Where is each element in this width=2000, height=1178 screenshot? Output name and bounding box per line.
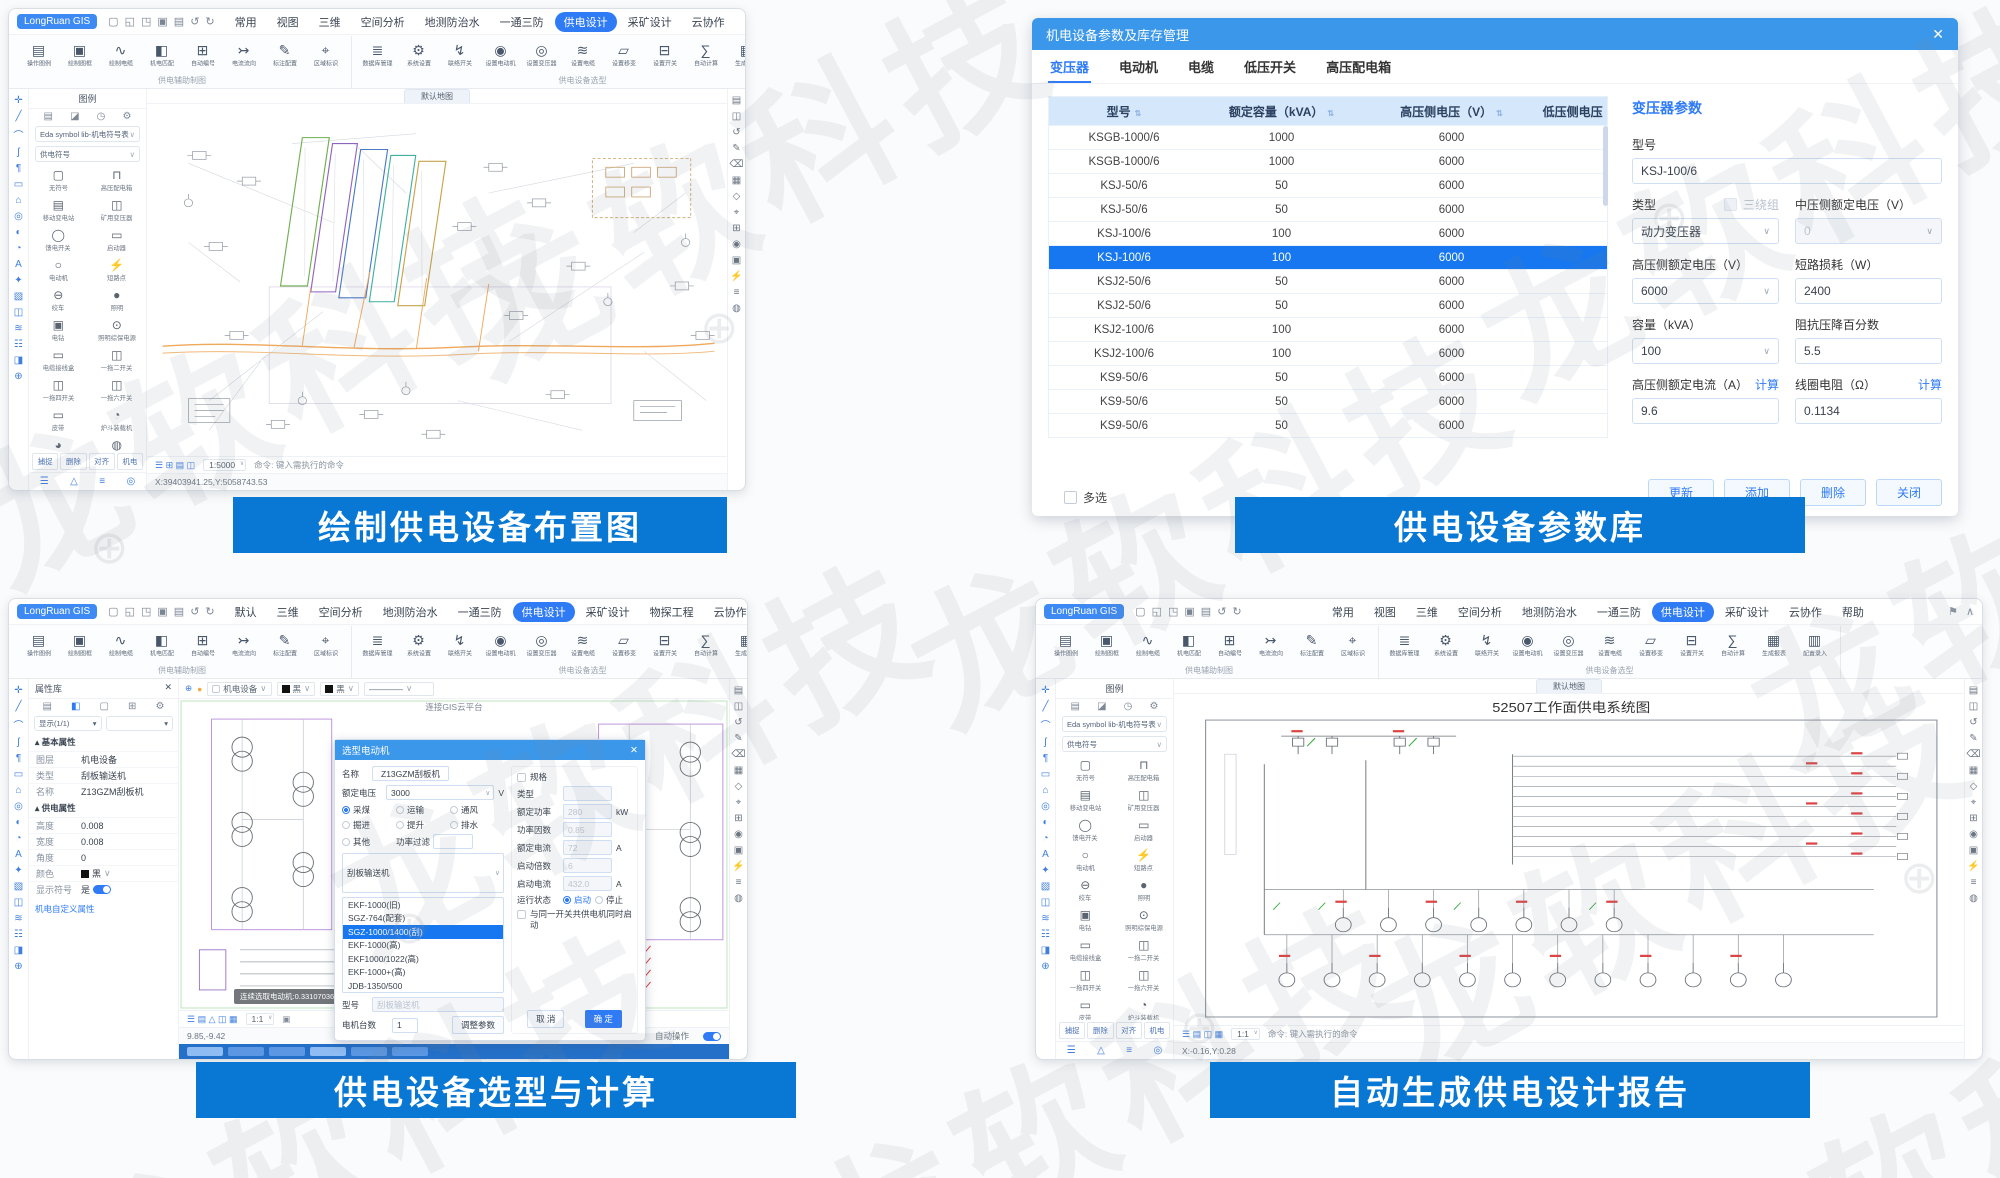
tool-icon[interactable]: ☷ — [14, 929, 23, 940]
menu-常用[interactable]: 常用 — [226, 12, 266, 32]
save-icon[interactable]: ◳ — [1168, 605, 1178, 618]
ribbon-btn-flow-icon[interactable]: ↣ 电流流向 — [1250, 626, 1291, 665]
open-file-icon[interactable]: ◱ — [125, 605, 135, 618]
tab-变压器[interactable]: 变压器 — [1048, 51, 1091, 82]
pin-icon[interactable]: ⊕ — [185, 683, 192, 694]
legend-btn-删除[interactable]: 删除 — [60, 453, 86, 470]
table-row[interactable]: KS9-50/650 6000 — [1049, 389, 1608, 413]
tool-icon[interactable]: ⌂ — [15, 195, 21, 206]
taskbar-chip[interactable] — [351, 1047, 387, 1056]
tool-icon[interactable]: ▧ — [14, 291, 23, 302]
tool-icon[interactable]: ʃ — [1044, 737, 1046, 748]
menu-默认[interactable]: 默认 — [226, 602, 266, 622]
layers-icon[interactable]: ≡ — [1126, 1045, 1132, 1056]
tree-icon[interactable]: △ — [1097, 1045, 1105, 1056]
col-header[interactable]: 高压侧电压（V）⇅ — [1364, 103, 1539, 120]
tool-icon[interactable]: ◍ — [1969, 893, 1978, 904]
symbol-sym-starter[interactable]: ▭ 启动器 — [1115, 816, 1174, 846]
table-row[interactable]: KSJ-50/650 6000 — [1049, 173, 1608, 197]
symbol-sym-switch-2[interactable]: ◫ 一拖二开关 — [88, 346, 147, 376]
ribbon-btn-cable-icon[interactable]: ∿ 绘制电缆 — [100, 36, 141, 75]
ribbon-btn-link-switch-icon[interactable]: ↯ 联络开关 — [439, 626, 480, 665]
menu-采矿设计[interactable]: 采矿设计 — [619, 12, 681, 32]
show-symbol-toggle[interactable] — [93, 885, 111, 894]
symbol-sym-starter[interactable]: ▭ 启动器 — [88, 226, 147, 256]
menu-一通三防[interactable]: 一通三防 — [1588, 602, 1650, 622]
coil-res-calc-link[interactable]: 计算 — [1918, 376, 1942, 393]
tree-icon[interactable]: △ — [70, 476, 78, 487]
symbol-sym-scraper-loader[interactable]: ◕ 耙斗装载机 — [29, 436, 88, 451]
adjust-params-button[interactable]: 调整参数 — [452, 1016, 504, 1034]
tool-icon[interactable]: ◔ — [15, 833, 21, 844]
model-input[interactable]: KSJ-100/6 — [1632, 158, 1942, 184]
symbol-sym-mobile-substation[interactable]: ▤ 移动变电站 — [29, 196, 88, 226]
tool-icon[interactable]: ◉ — [734, 829, 743, 840]
model-option[interactable]: EKF1000/1022(高) — [343, 952, 503, 966]
flag-icon[interactable]: ⚑ — [1948, 605, 1958, 618]
ribbon-btn-legend-icon[interactable]: ▤ 操作图例 — [18, 36, 59, 75]
model-option[interactable]: EKF-1000+(高) — [343, 966, 503, 980]
tool-icon[interactable]: ⌫ — [729, 159, 743, 170]
tool-icon[interactable]: ¶ — [16, 753, 21, 764]
tab-default-map[interactable]: 默认地图 — [404, 89, 470, 103]
tool-icon[interactable]: ⊞ — [732, 223, 740, 234]
undo-icon[interactable]: ↺ — [1217, 605, 1226, 618]
tool-icon[interactable]: ✦ — [14, 275, 22, 286]
usage-radio-运输[interactable]: 运输 — [396, 804, 450, 816]
tool-icon[interactable]: ◫ — [14, 307, 23, 318]
linetype-select[interactable]: ————∨ — [364, 682, 434, 696]
menu-供电设计[interactable]: 供电设计 — [513, 602, 575, 622]
snap-icons[interactable]: ☰ ▤ ◫ ▦ — [1182, 1029, 1223, 1040]
legend-btn-删除[interactable]: 删除 — [1087, 1022, 1113, 1039]
ribbon-btn-flow-icon[interactable]: ↣ 电流流向 — [223, 626, 264, 665]
tool-icon[interactable]: ▧ — [14, 881, 23, 892]
snap-icons[interactable]: ☰ ▤ △ ◫ ▦ — [187, 1014, 238, 1025]
menu-地测防治水[interactable]: 地测防治水 — [374, 602, 447, 622]
symbol-sym-winch[interactable]: ⊖ 绞车 — [1056, 876, 1115, 906]
symbol-lib-select[interactable]: Eda symbol lib-机电符号表∨ — [1062, 716, 1167, 732]
tab-default-map[interactable]: 默认地图 — [1536, 679, 1602, 693]
menu-空间分析[interactable]: 空间分析 — [352, 12, 414, 32]
gear-icon[interactable]: ⚙ — [122, 111, 131, 122]
tool-icon[interactable]: ╱ — [1042, 701, 1048, 712]
ribbon-btn-cable-set-icon[interactable]: ≋ 设置电缆 — [562, 626, 603, 665]
ribbon-btn-switch-set-icon[interactable]: ⊟ 设置开关 — [644, 626, 685, 665]
print-icon[interactable]: ▤ — [1201, 605, 1211, 618]
tool-icon[interactable]: ⊞ — [1969, 813, 1977, 824]
drawing-canvas[interactable]: 52507工作面供电系统图 — [1174, 694, 1964, 1025]
legend-btn-机电[interactable]: 机电 — [1144, 1022, 1170, 1039]
tool-icon[interactable]: ◨ — [1041, 945, 1050, 956]
menu-空间分析[interactable]: 空间分析 — [1449, 602, 1511, 622]
symbol-sym-mobile-substation[interactable]: ▤ 移动变电站 — [1056, 786, 1115, 816]
tool-icon[interactable]: ◍ — [734, 893, 743, 904]
tool-icon[interactable]: ʃ — [17, 737, 19, 748]
ribbon-btn-switch-set-icon[interactable]: ⊟ 设置开关 — [1671, 626, 1712, 665]
ribbon-btn-auto-calc-icon[interactable]: ∑ 自动计算 — [685, 36, 726, 75]
cancel-button[interactable]: 取 消 — [527, 1010, 564, 1028]
symbol-sym-switch-4[interactable]: ◫ 一拖四开关 — [29, 376, 88, 406]
save-all-icon[interactable]: ▣ — [157, 15, 167, 28]
redo-icon[interactable]: ↻ — [205, 15, 214, 28]
state-radio-停止[interactable]: 停止 — [595, 894, 623, 906]
category-select[interactable]: 刮板输送机 — [342, 853, 504, 893]
menu-采矿设计[interactable]: 采矿设计 — [577, 602, 639, 622]
tool-icon[interactable]: ◐ — [15, 817, 21, 828]
symbol-sym-hv-box[interactable]: ⊓ 高压配电箱 — [1115, 756, 1174, 786]
symbol-sym-cable-box[interactable]: ▭ 电缆接线盒 — [1056, 936, 1115, 966]
list-icon[interactable]: ☰ — [40, 476, 49, 487]
save-all-icon[interactable]: ▣ — [1184, 605, 1194, 618]
tool-icon[interactable]: ▭ — [14, 179, 23, 190]
state-radio-启动[interactable]: 启动 — [563, 894, 591, 906]
tool-icon[interactable]: ◐ — [15, 227, 21, 238]
new-file-icon[interactable]: ▢ — [108, 15, 118, 28]
tool-icon[interactable]: ¶ — [1043, 753, 1048, 764]
ribbon-btn-mobile-sub-icon[interactable]: ▱ 设置移变 — [603, 36, 644, 75]
menu-三维[interactable]: 三维 — [268, 602, 308, 622]
ribbon-btn-auto-calc-icon[interactable]: ∑ 自动计算 — [685, 626, 726, 665]
three-winding-checkbox[interactable] — [1724, 198, 1737, 211]
symbol-sym-belt[interactable]: ▭ 皮带 — [1056, 996, 1115, 1020]
ribbon-btn-database-icon[interactable]: ≣ 数据库管理 — [357, 36, 398, 75]
table-row[interactable]: KSJ-50/650 6000 — [1049, 197, 1608, 221]
hv-current-input[interactable]: 9.6 — [1632, 398, 1779, 424]
tool-icon[interactable]: ≋ — [14, 323, 22, 334]
ribbon-btn-settings-icon[interactable]: ⚙ 系统设置 — [398, 626, 439, 665]
tool-icon[interactable]: ⌂ — [15, 785, 21, 796]
ribbon-btn-motor-set-icon[interactable]: ◉ 设置电动机 — [480, 626, 521, 665]
taskbar-chip[interactable] — [392, 1047, 428, 1056]
dialog-btn-关闭[interactable]: 关闭 — [1876, 479, 1942, 506]
ribbon-btn-database-icon[interactable]: ≣ 数据库管理 — [1384, 626, 1425, 665]
legend-btn-对齐[interactable]: 对齐 — [89, 453, 115, 470]
tool-icon[interactable]: ⌒ — [1041, 717, 1051, 732]
menu-一通三防[interactable]: 一通三防 — [449, 602, 511, 622]
model-option[interactable]: JDB-1350/500 — [343, 979, 503, 993]
tool-icon[interactable]: ▭ — [1041, 769, 1050, 780]
tool-icon[interactable]: ≡ — [1971, 877, 1977, 888]
legend-btn-捕捉[interactable]: 捕捉 — [1059, 1022, 1085, 1039]
clock-icon[interactable]: ◷ — [97, 111, 106, 122]
ribbon-btn-number-icon[interactable]: ⊞ 自动编号 — [182, 626, 223, 665]
usage-radio-掘进[interactable]: 掘进 — [342, 819, 396, 831]
menu-三维[interactable]: 三维 — [310, 12, 350, 32]
table-row[interactable]: KSJ2-50/650 6000 — [1049, 269, 1608, 293]
tool-icon[interactable]: ⌖ — [736, 797, 742, 808]
symbol-sym-winch[interactable]: ⊖ 绞车 — [29, 286, 88, 316]
auto-operate-toggle[interactable] — [703, 1032, 721, 1041]
legend-btn-对齐[interactable]: 对齐 — [1116, 1022, 1142, 1039]
menu-帮助[interactable]: 帮助 — [1833, 602, 1873, 622]
tool-icon[interactable]: ≡ — [734, 287, 740, 298]
usage-radio-通风[interactable]: 通风 — [450, 804, 504, 816]
tool-icon[interactable]: ↺ — [734, 717, 742, 728]
tool-icon[interactable]: ◔ — [15, 243, 21, 254]
symbol-sym-mine-transformer[interactable]: ◫ 矿用变压器 — [1115, 786, 1174, 816]
ribbon-btn-transformer-set-icon[interactable]: ◎ 设置变压器 — [1548, 626, 1589, 665]
plus-icon[interactable]: ⊞ — [128, 701, 136, 712]
tool-icon[interactable]: ʃ — [17, 147, 19, 158]
menu-一通三防[interactable]: 一通三防 — [491, 12, 553, 32]
undo-icon[interactable]: ↺ — [190, 605, 199, 618]
usage-radio-排水[interactable]: 排水 — [450, 819, 504, 831]
ribbon-btn-auto-calc-icon[interactable]: ∑ 自动计算 — [1712, 626, 1753, 665]
ribbon-btn-settings-icon[interactable]: ⚙ 系统设置 — [1425, 626, 1466, 665]
tool-icon[interactable]: A — [1042, 849, 1049, 860]
tool-icon[interactable]: ▣ — [1969, 845, 1978, 856]
tool-icon[interactable]: ↺ — [732, 127, 740, 138]
tool-icon[interactable]: ✎ — [734, 733, 742, 744]
tool-icon[interactable]: ▤ — [732, 95, 741, 106]
tool-icon[interactable]: ⚡ — [730, 271, 742, 282]
tool-icon[interactable]: ◇ — [733, 191, 741, 202]
menu-采矿设计[interactable]: 采矿设计 — [1716, 602, 1778, 622]
col-header[interactable]: 额定容量（kVA）⇅ — [1199, 103, 1364, 120]
symbol-sym-lighting-protector[interactable]: ⊙ 照明综保电源 — [88, 316, 147, 346]
tab-高压配电箱[interactable]: 高压配电箱 — [1324, 51, 1393, 82]
symbol-sym-cable-box[interactable]: ▭ 电缆接线盒 — [29, 346, 88, 376]
symbol-sym-lighting[interactable]: ● 照明 — [1115, 876, 1174, 906]
sort-icon[interactable]: ⇅ — [1327, 109, 1334, 118]
filter-select[interactable]: 显示(1/1)▾ — [34, 716, 102, 731]
print-icon[interactable]: ▤ — [174, 15, 184, 28]
open-file-icon[interactable]: ◱ — [1152, 605, 1162, 618]
legend-btn-机电[interactable]: 机电 — [117, 453, 143, 470]
color-select-1[interactable]: 黑∨ — [277, 682, 316, 696]
tool-icon[interactable]: ✛ — [14, 95, 22, 106]
table-scrollbar[interactable] — [1603, 126, 1608, 206]
model-option[interactable]: SGZ-1000/1400(刮) — [343, 925, 503, 939]
symbol-sym-drill[interactable]: ▣ 电钻 — [29, 316, 88, 346]
tool-icon[interactable]: ✦ — [14, 865, 22, 876]
tool-icon[interactable]: ◫ — [732, 111, 741, 122]
new-file-icon[interactable]: ▢ — [108, 605, 118, 618]
dialog-btn-删除[interactable]: 删除 — [1800, 479, 1866, 506]
ribbon-btn-link-switch-icon[interactable]: ↯ 联络开关 — [1466, 626, 1507, 665]
tool-icon[interactable]: ▣ — [734, 845, 743, 856]
symbol-sym-hv-box[interactable]: ⊓ 高压配电箱 — [88, 166, 147, 196]
target-icon[interactable]: ◎ — [1154, 1045, 1163, 1056]
tool-icon[interactable]: ◎ — [1041, 801, 1050, 812]
ribbon-btn-database-icon[interactable]: ≣ 数据库管理 — [357, 626, 398, 665]
gear-icon[interactable]: ⚙ — [1149, 701, 1158, 712]
image-icon[interactable]: ◪ — [1097, 701, 1106, 712]
tool-icon[interactable]: ✛ — [14, 685, 22, 696]
sort-icon[interactable]: ⇅ — [1496, 109, 1503, 118]
table-row[interactable]: KSJ-100/6100 6000 — [1049, 221, 1608, 245]
close-icon[interactable]: ✕ — [164, 682, 172, 695]
menu-帮助[interactable]: 帮助 — [736, 12, 746, 32]
menu-云协作[interactable]: 云协作 — [705, 602, 748, 622]
ribbon-btn-report-icon[interactable]: ▦ 生成报表 — [726, 626, 748, 665]
coil-res-input[interactable]: 0.1134 — [1795, 398, 1942, 424]
tool-icon[interactable]: ▧ — [1041, 881, 1050, 892]
tool-icon[interactable]: ╱ — [15, 701, 21, 712]
ribbon-btn-annotate-icon[interactable]: ✎ 标注配置 — [264, 626, 305, 665]
tab-电动机[interactable]: 电动机 — [1117, 51, 1160, 82]
table-row[interactable]: KS9-50/650 6000 — [1049, 413, 1608, 437]
gear-icon[interactable]: ⚙ — [155, 701, 164, 712]
ribbon-btn-report-icon[interactable]: ▦ 生成报表 — [1753, 626, 1794, 665]
tool-icon[interactable]: ◫ — [14, 897, 23, 908]
symbol-sym-loader[interactable]: ◔ 炉斗装载机 — [1115, 996, 1174, 1020]
tool-icon[interactable]: ▣ — [732, 255, 741, 266]
usage-radio-采煤[interactable]: 采煤 — [342, 804, 396, 816]
symbol-sym-motor[interactable]: ○ 电动机 — [1056, 846, 1115, 876]
tool-icon[interactable]: ◉ — [1969, 829, 1978, 840]
tool-icon[interactable]: ⌒ — [14, 127, 24, 142]
symbol-sym-belt[interactable]: ▭ 皮带 — [29, 406, 88, 436]
grid-icon[interactable]: ▤ — [44, 111, 53, 122]
table-row[interactable]: KS9-50/650 6000 — [1049, 365, 1608, 389]
table-row[interactable]: KSGB-1000/61000 6000 — [1049, 149, 1608, 173]
list-icon[interactable]: ◧ — [71, 701, 80, 712]
ribbon-btn-frame-icon[interactable]: ▣ 绘制图框 — [1086, 626, 1127, 665]
page-icon[interactable]: ▣ — [282, 1014, 290, 1025]
tool-icon[interactable]: ◐ — [1042, 817, 1048, 828]
tool-icon[interactable]: ◇ — [735, 781, 743, 792]
ribbon-btn-switch-set-icon[interactable]: ⊟ 设置开关 — [644, 36, 685, 75]
tool-icon[interactable]: ⊞ — [734, 813, 742, 824]
table-row[interactable]: KSJ2-100/6100 6000 — [1049, 341, 1608, 365]
ribbon-btn-match-icon[interactable]: ◧ 机电匹配 — [141, 626, 182, 665]
usage-radio-提升[interactable]: 提升 — [396, 819, 450, 831]
tool-icon[interactable]: ⊕ — [14, 961, 22, 972]
ribbon-btn-cable-icon[interactable]: ∿ 绘制电缆 — [1127, 626, 1168, 665]
ribbon-btn-frame-icon[interactable]: ▣ 绘制图框 — [59, 626, 100, 665]
tool-icon[interactable]: ⌒ — [14, 717, 24, 732]
ribbon-btn-mobile-sub-icon[interactable]: ▱ 设置移变 — [603, 626, 644, 665]
menu-云协作[interactable]: 云协作 — [683, 12, 734, 32]
legend-btn-捕捉[interactable]: 捕捉 — [32, 453, 58, 470]
tab-电缆[interactable]: 电缆 — [1186, 51, 1216, 82]
open-file-icon[interactable]: ◱ — [125, 15, 135, 28]
print-icon[interactable]: ▤ — [174, 605, 184, 618]
zoom-select[interactable]: 1:1 — [1231, 1028, 1260, 1040]
symbol-sym-switch-4[interactable]: ◫ 一拖四开关 — [1056, 966, 1115, 996]
ribbon-btn-region-icon[interactable]: ⌖ 区域标识 — [305, 36, 346, 75]
ribbon-btn-motor-set-icon[interactable]: ◉ 设置电动机 — [480, 36, 521, 75]
new-file-icon[interactable]: ▢ — [1135, 605, 1145, 618]
tool-icon[interactable]: ↺ — [1969, 717, 1977, 728]
symbol-sym-mine-transformer[interactable]: ◫ 矿用变压器 — [88, 196, 147, 226]
symbol-sym-fixed-fan[interactable]: ◍ 固定式局扇 — [88, 436, 147, 451]
save-icon[interactable]: ◳ — [141, 605, 151, 618]
tool-icon[interactable]: ≋ — [1041, 913, 1049, 924]
list-icon[interactable]: ☰ — [1067, 1045, 1076, 1056]
ribbon-btn-number-icon[interactable]: ⊞ 自动编号 — [182, 36, 223, 75]
tool-icon[interactable]: A — [15, 849, 22, 860]
symbol-sym-drill[interactable]: ▣ 电钻 — [1056, 906, 1115, 936]
custom-props-link[interactable]: 机电自定义属性 — [29, 897, 178, 921]
motor-count-input[interactable]: 1 — [392, 1018, 418, 1033]
save-icon[interactable]: ◳ — [141, 15, 151, 28]
ribbon-btn-transformer-set-icon[interactable]: ◎ 设置变压器 — [521, 36, 562, 75]
menu-供电设计[interactable]: 供电设计 — [1652, 602, 1714, 622]
tool-icon[interactable]: ◨ — [14, 355, 23, 366]
tool-icon[interactable]: ◉ — [732, 239, 741, 250]
ribbon-btn-match-icon[interactable]: ◧ 机电匹配 — [141, 36, 182, 75]
type-select[interactable]: 动力变压器 — [1632, 218, 1779, 244]
ribbon-btn-settings-icon[interactable]: ⚙ 系统设置 — [398, 36, 439, 75]
spec-check[interactable]: 规格 — [517, 771, 632, 783]
menu-物探工程[interactable]: 物探工程 — [641, 602, 703, 622]
tool-icon[interactable]: ⚡ — [1967, 861, 1979, 872]
snap-icons[interactable]: ☰ ⊞ ▤ ◫ — [155, 460, 195, 471]
sync-check[interactable]: 与同一开关共供电机同时启动 — [517, 909, 632, 930]
menu-常用[interactable]: 常用 — [1323, 602, 1363, 622]
ribbon-btn-frame-icon[interactable]: ▣ 绘制图框 — [59, 36, 100, 75]
ribbon-btn-motor-set-icon[interactable]: ◉ 设置电动机 — [1507, 626, 1548, 665]
ribbon-btn-transformer-set-icon[interactable]: ◎ 设置变压器 — [521, 626, 562, 665]
chart-icon[interactable]: ▤ — [43, 701, 52, 712]
symbol-sym-lighting-protector[interactable]: ⊙ 照明综保电源 — [1115, 906, 1174, 936]
tool-icon[interactable]: ◎ — [14, 801, 23, 812]
target-icon[interactable]: ◎ — [127, 476, 136, 487]
tool-icon[interactable]: ≡ — [736, 877, 742, 888]
symbol-sym-none[interactable]: ▢ 无符号 — [1056, 756, 1115, 786]
symbol-sym-switch-6[interactable]: ◫ 一拖六开关 — [88, 376, 147, 406]
col-header[interactable]: 型号⇅ — [1049, 103, 1199, 120]
tool-icon[interactable]: ✦ — [1041, 865, 1049, 876]
model-list[interactable]: EKF-1000(旧)SGZ-764(配套)SGZ-1000/1400(刮)EK… — [342, 897, 504, 993]
tool-icon[interactable]: ≋ — [14, 913, 22, 924]
symbol-sym-switch-6[interactable]: ◫ 一拖六开关 — [1115, 966, 1174, 996]
tool-icon[interactable]: ◍ — [732, 303, 741, 314]
layer-select[interactable]: 机电设备∨ — [207, 682, 271, 696]
ribbon-btn-legend-icon[interactable]: ▤ 操作图例 — [18, 626, 59, 665]
table-row[interactable]: KSJ2-100/6100 6000 — [1049, 317, 1608, 341]
ribbon-btn-link-switch-icon[interactable]: ↯ 联络开关 — [439, 36, 480, 75]
model-option[interactable]: EKF-1000(旧) — [343, 898, 503, 912]
col-header[interactable]: 低压侧电压（V）⇅ — [1539, 103, 1608, 120]
ribbon-btn-cable-icon[interactable]: ∿ 绘制电缆 — [100, 626, 141, 665]
tool-icon[interactable]: ⌂ — [1042, 785, 1048, 796]
grid-icon[interactable]: ▤ — [1071, 701, 1080, 712]
table-row[interactable]: KSGB-1000/61000 6000 — [1049, 125, 1608, 149]
tool-icon[interactable]: ◫ — [734, 701, 743, 712]
layers-icon[interactable]: ≡ — [99, 476, 105, 487]
ok-button[interactable]: 确 定 — [585, 1010, 622, 1028]
taskbar-chip[interactable] — [310, 1047, 346, 1056]
ribbon-btn-annotate-icon[interactable]: ✎ 标注配置 — [264, 36, 305, 75]
symbol-sym-loader[interactable]: ◔ 炉斗装载机 — [88, 406, 147, 436]
tool-icon[interactable]: ▦ — [734, 765, 743, 776]
bulb-icon[interactable]: ● — [197, 684, 202, 694]
menu-地测防治水[interactable]: 地测防治水 — [416, 12, 489, 32]
tool-icon[interactable]: ⚡ — [732, 861, 744, 872]
tool-icon[interactable]: ◫ — [1969, 701, 1978, 712]
menu-地测防治水[interactable]: 地测防治水 — [1513, 602, 1586, 622]
ribbon-btn-cable-set-icon[interactable]: ≋ 设置电缆 — [1589, 626, 1630, 665]
tool-icon[interactable]: ◎ — [14, 211, 23, 222]
tool-icon[interactable]: ◨ — [14, 945, 23, 956]
ribbon-btn-report-icon[interactable]: ▦ 生成报表 — [726, 36, 746, 75]
box-icon[interactable]: ▢ — [100, 701, 109, 712]
tool-icon[interactable]: ▦ — [732, 175, 741, 186]
tool-icon[interactable]: ¶ — [16, 163, 21, 174]
tool-icon[interactable]: ▤ — [734, 685, 743, 696]
ribbon-btn-cable-set-icon[interactable]: ≋ 设置电缆 — [562, 36, 603, 75]
menu-空间分析[interactable]: 空间分析 — [310, 602, 372, 622]
color-select-2[interactable]: 黑∨ — [320, 682, 359, 696]
symbol-sym-short-point[interactable]: ⚡ 短路点 — [88, 256, 147, 286]
tool-icon[interactable]: ▭ — [14, 769, 23, 780]
tool-icon[interactable]: ⌫ — [1966, 749, 1980, 760]
zoom-select[interactable]: 1:1 — [246, 1013, 275, 1025]
